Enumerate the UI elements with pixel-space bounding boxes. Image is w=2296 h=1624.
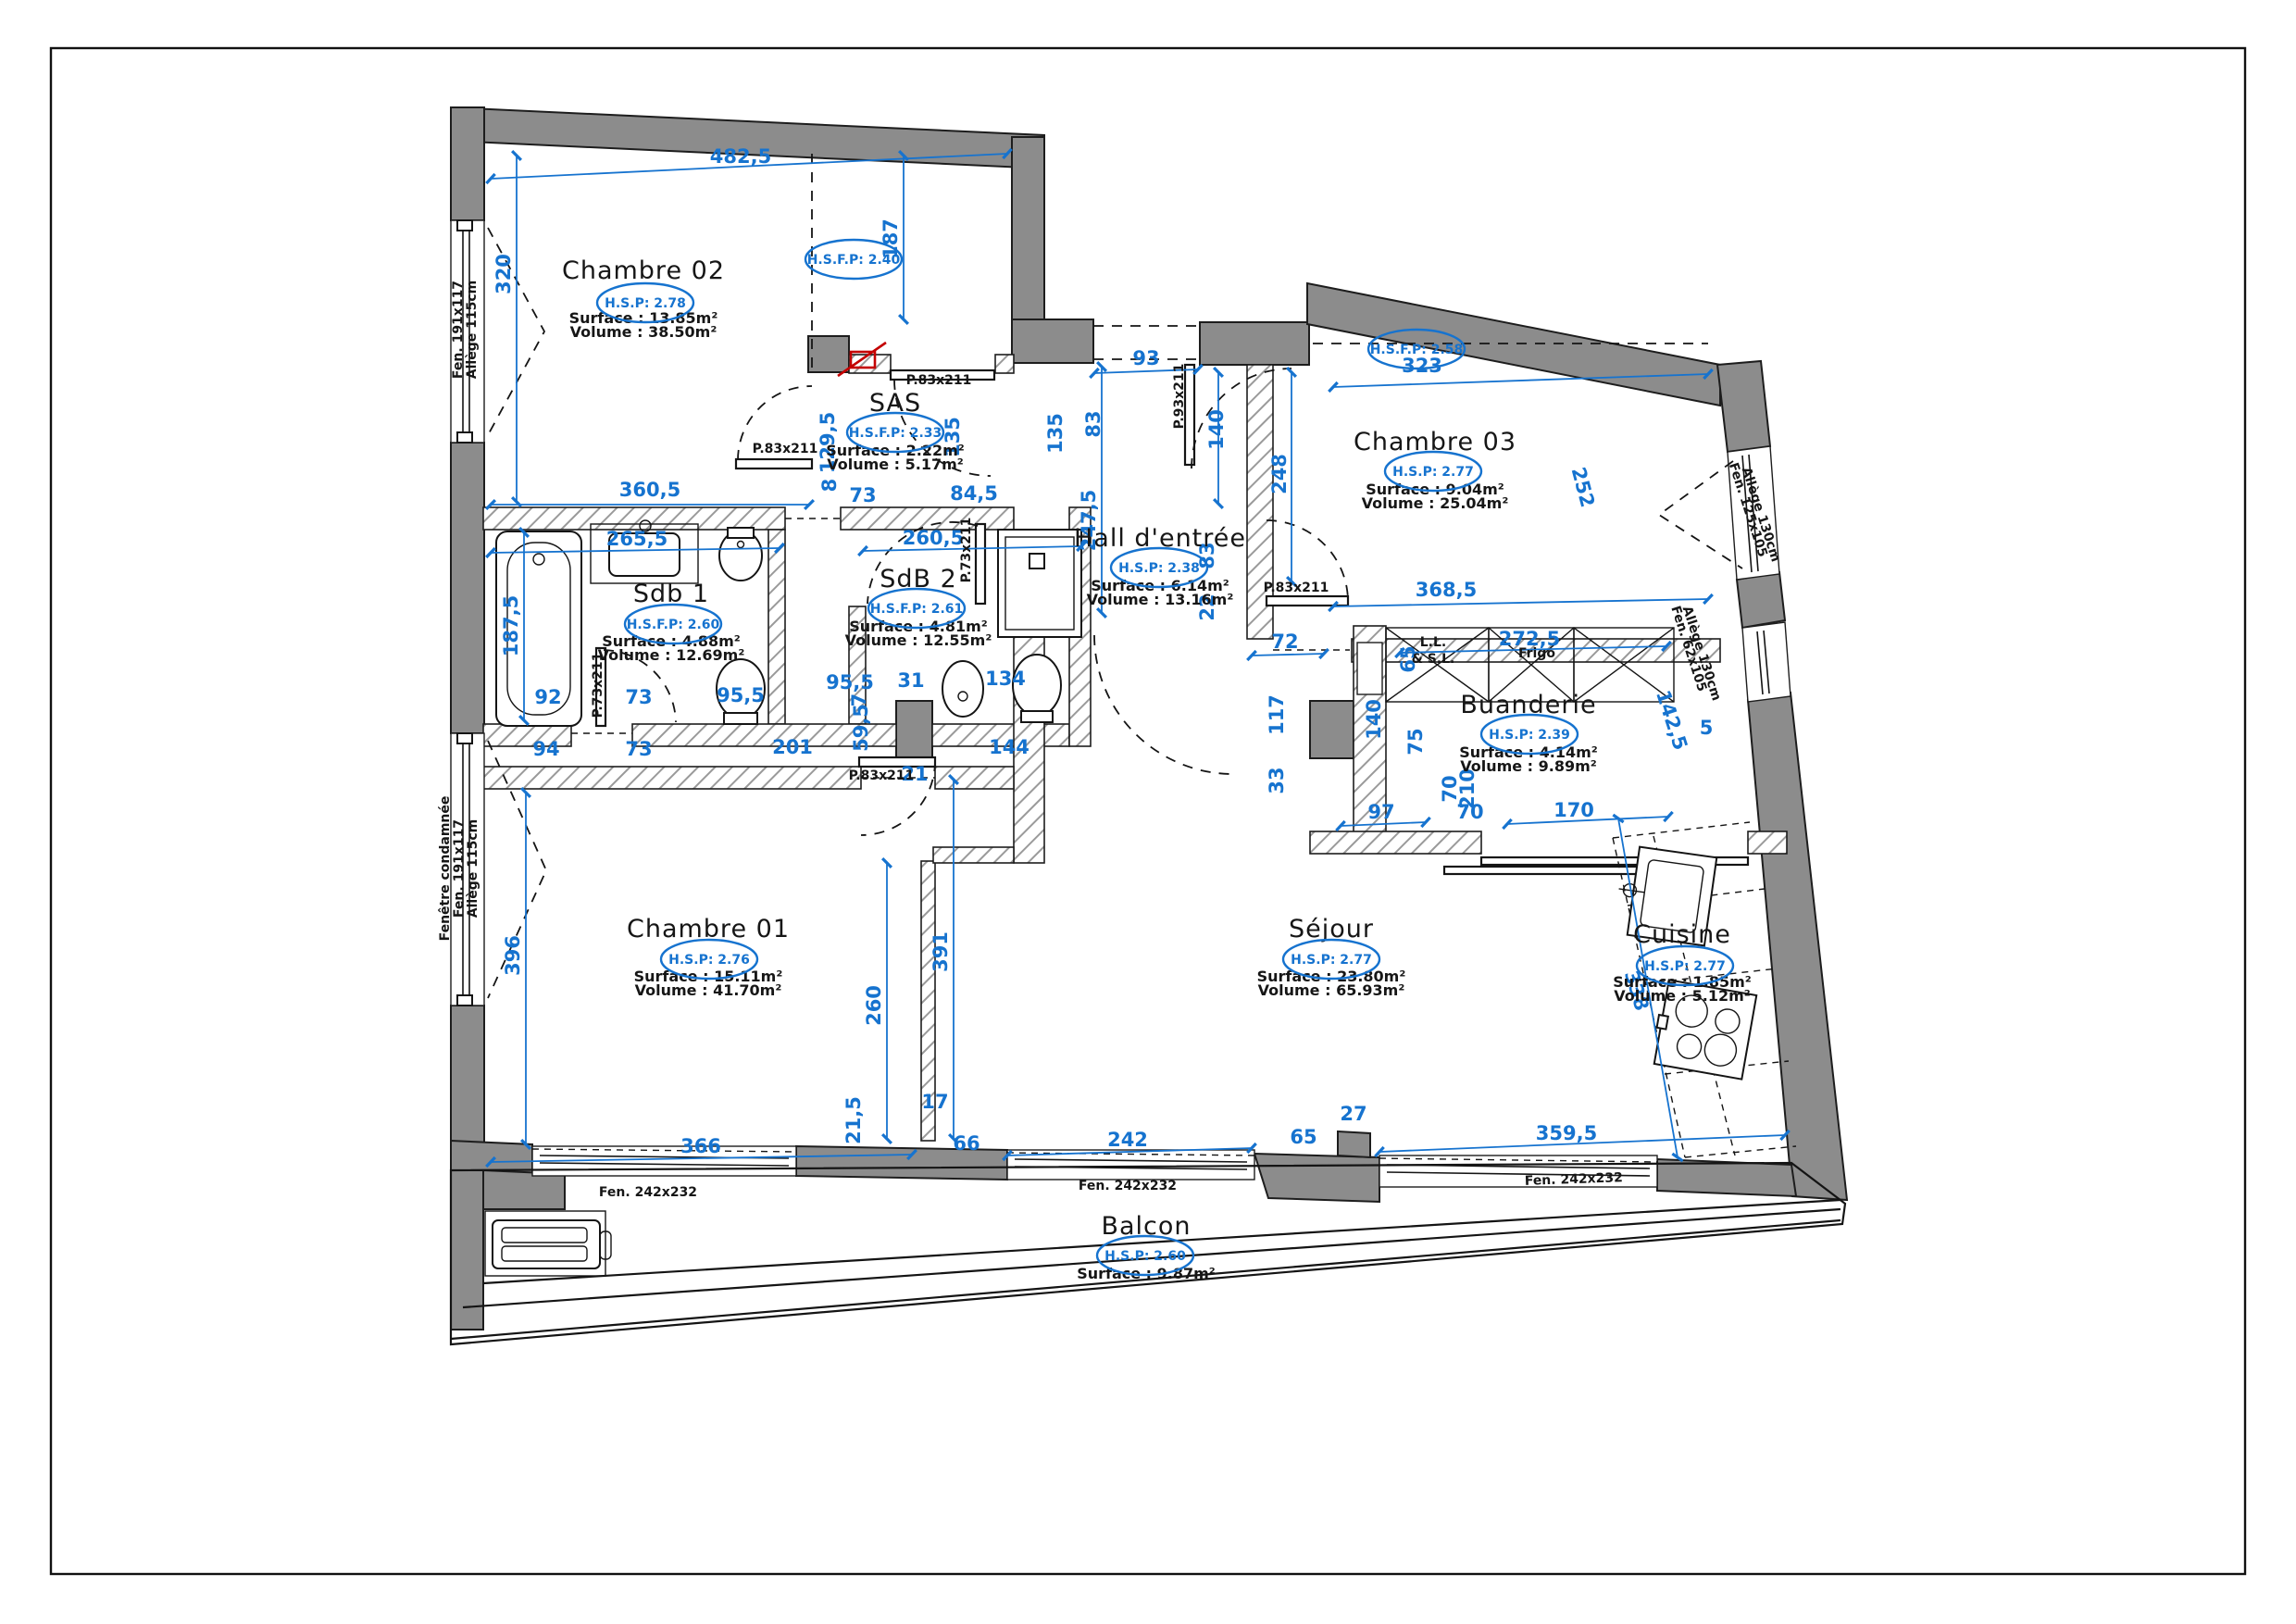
dimension-label: 482,5: [710, 145, 771, 168]
dimension-label: 92: [534, 686, 561, 708]
dimension-label: 323: [1402, 355, 1442, 377]
opening-label: Fen. 191x117: [451, 281, 466, 379]
dimension-label: 73: [625, 686, 652, 708]
dimension-label: 187,5: [500, 595, 522, 656]
dimension-label: 73: [625, 738, 652, 760]
dimension-label: 65: [1290, 1126, 1316, 1148]
opening-label: L.L.: [1420, 635, 1446, 650]
opening-label: Allège 115cm: [465, 281, 480, 379]
wall-segment: [1748, 831, 1787, 854]
dimension-label: 140: [1363, 699, 1385, 740]
floor-plan-page: 482,5320187360,5129,587384,5135135938314…: [0, 0, 2296, 1624]
wall-segment: [451, 443, 484, 733]
wall-segment: [935, 767, 1014, 789]
ceiling-height-label: H.S.F.P: 2.58: [1370, 343, 1464, 357]
dimension-label: 368,5: [1416, 579, 1477, 601]
dimension-label: 94: [532, 738, 559, 760]
opening-label: P.83x211: [906, 373, 972, 388]
wall-niche: [1357, 643, 1382, 694]
dimension-label: 140: [1205, 409, 1228, 450]
ceiling-height-label: H.S.P: 2.76: [668, 953, 750, 968]
wall-segment: [1717, 361, 1770, 452]
dimension-label: 70: [1456, 801, 1483, 823]
wall-segment: [1737, 572, 1785, 628]
room-volume-label: Volume : 65.93m²: [1258, 981, 1405, 999]
wall-segment: [1338, 1131, 1370, 1157]
dimension-label: 359,5: [1536, 1122, 1597, 1144]
bidet-base: [724, 713, 757, 724]
dimension-label: 8: [818, 479, 841, 493]
wall-segment: [451, 107, 484, 220]
dimension-label: 135: [1044, 413, 1067, 454]
dimension-label: 31: [897, 669, 924, 692]
toilet-base: [1021, 711, 1053, 722]
room-volume-label: Volume : 41.70m²: [635, 981, 782, 999]
wall-segment: [1200, 322, 1309, 365]
opening-label: P.73x211: [591, 653, 605, 718]
ceiling-height-label: H.S.F.P: 2.60: [627, 618, 720, 632]
dimension-label: 73: [849, 484, 876, 506]
wall-segment: [483, 767, 861, 789]
room-volume-label: Volume : 38.50m²: [570, 323, 717, 341]
dimension-label: 59,5: [850, 704, 872, 752]
dimension-label: 95,5: [826, 671, 874, 693]
dimension-label: 242: [1107, 1129, 1148, 1151]
opening-label: P.93x211: [1172, 364, 1187, 430]
room-name-label: Cuisine: [1633, 920, 1731, 949]
pillar: [1310, 701, 1354, 758]
opening-label: Frigo: [1518, 646, 1555, 661]
room-volume-label: Volume : 12.69m²: [598, 646, 745, 664]
room-name-label: Chambre 02: [562, 256, 725, 285]
room-volume-label: Volume : 12.55m²: [845, 631, 992, 649]
opening-label: P.83x211: [1264, 581, 1329, 595]
dimension-label: 391: [930, 931, 952, 972]
dimension-label: 201: [772, 736, 813, 758]
dimension-label: 396: [502, 935, 524, 976]
dimension-label: 33: [1266, 767, 1288, 793]
opening-label: P.83x211: [849, 768, 915, 783]
ceiling-height-label: H.S.F.P: 2.33: [849, 426, 942, 441]
wall-segment: [995, 355, 1014, 373]
ceiling-height-label: H.S.P: 2.78: [605, 296, 686, 311]
pillar: [808, 336, 849, 372]
bidet: [942, 661, 983, 717]
ceiling-height-label: H.S.P: 2.38: [1118, 561, 1200, 576]
opening-label: P.73x211: [959, 518, 974, 583]
wall-segment: [1310, 831, 1481, 854]
room-volume-label: Volume : 9.89m²: [1460, 757, 1597, 775]
dimension-label: 142,5: [1652, 688, 1691, 754]
opening-label: Fenêtre condamnée: [438, 796, 453, 942]
wall-segment: [1254, 1154, 1379, 1202]
dimension-label: 97: [1367, 801, 1394, 823]
room-volume-label: Volume : 25.04m²: [1362, 494, 1509, 512]
dimension-label: 170: [1554, 799, 1594, 821]
opening-label: Allège 115cm: [466, 819, 480, 918]
dimension-label: 66: [953, 1132, 980, 1155]
pillar: [896, 701, 932, 760]
opening-label: Fen. 191x117: [452, 819, 467, 918]
wall-segment: [933, 847, 1014, 863]
wall-segment: [451, 1006, 484, 1144]
dimension-label: 320: [493, 254, 515, 294]
sheet-border: [51, 48, 2245, 1574]
window-right-buanderie: [1742, 622, 1791, 702]
wall-segment: [1657, 1159, 1796, 1196]
dimension-label: 93: [1132, 347, 1159, 369]
ceiling-height-label: H.S.P: 2.77: [1291, 953, 1372, 968]
dimension-label: 360,5: [619, 479, 680, 501]
balcony-radiator: [485, 1211, 611, 1276]
wall-segment: [1012, 319, 1093, 363]
ceiling-height-label: H.S.F.P: 2.40: [807, 253, 901, 268]
ceiling-height-label: H.S.P: 2.39: [1489, 728, 1570, 743]
dimension-label: 117: [1266, 694, 1288, 735]
wall-segment: [768, 530, 785, 724]
ceiling-height-label: H.S.P: 2.77: [1644, 959, 1726, 974]
dimension-label: 17: [921, 1091, 948, 1113]
ceiling-height-label: H.S.P: 2.77: [1392, 465, 1474, 480]
ceiling-height-label: H.S.F.P: 2.61: [870, 602, 964, 617]
dimension-label: 144: [989, 736, 1029, 758]
dimension-label: 260: [863, 985, 885, 1026]
dimension-label: 75: [1404, 728, 1427, 755]
opening-label: P.83x211: [753, 442, 818, 456]
dimension-label: 84,5: [950, 482, 998, 505]
dimension-label: 27: [1340, 1103, 1366, 1125]
hall-swing-arc: [1094, 635, 1233, 774]
counter-edge: [1613, 822, 1750, 838]
floor-plan-drawing: 482,5320187360,5129,587384,5135135938314…: [0, 0, 2296, 1624]
opening-label: Fen. 242x232: [1079, 1179, 1177, 1193]
shower-drain: [1029, 554, 1044, 568]
dimension-label: 95,5: [717, 684, 765, 706]
toilet-tank: [728, 528, 754, 538]
wall-segment: [483, 507, 785, 530]
dimension-label: 134: [985, 668, 1026, 690]
dimension-label: 21,5: [842, 1096, 865, 1144]
dimension-label: 248: [1268, 454, 1291, 494]
door-entrance: [1185, 365, 1291, 468]
dim-line: [1252, 654, 1324, 656]
wall-segment: [1748, 693, 1847, 1200]
room-volume-label: Volume : 5.12m²: [1614, 987, 1751, 1005]
dimension-label: 252: [1566, 465, 1599, 510]
room-volume-label: Volume : 5.17m²: [827, 456, 964, 473]
dim-line: [1333, 599, 1708, 606]
dimension-label: 366: [680, 1135, 721, 1157]
opening-label: & S.L.: [1412, 652, 1455, 667]
dimension-label: 260,5: [903, 527, 964, 549]
dimension-label: 265,5: [606, 528, 668, 550]
room-volume-label: Volume : 13.16m²: [1087, 591, 1234, 608]
ceiling-height-label: H.S.P: 2.60: [1104, 1249, 1186, 1264]
dimension-label: 72: [1271, 631, 1298, 653]
room-surface-label: Surface : 9.87m²: [1077, 1265, 1216, 1282]
dimension-label: 5: [1700, 717, 1714, 739]
opening-label: Fen. 242x232: [599, 1185, 697, 1200]
